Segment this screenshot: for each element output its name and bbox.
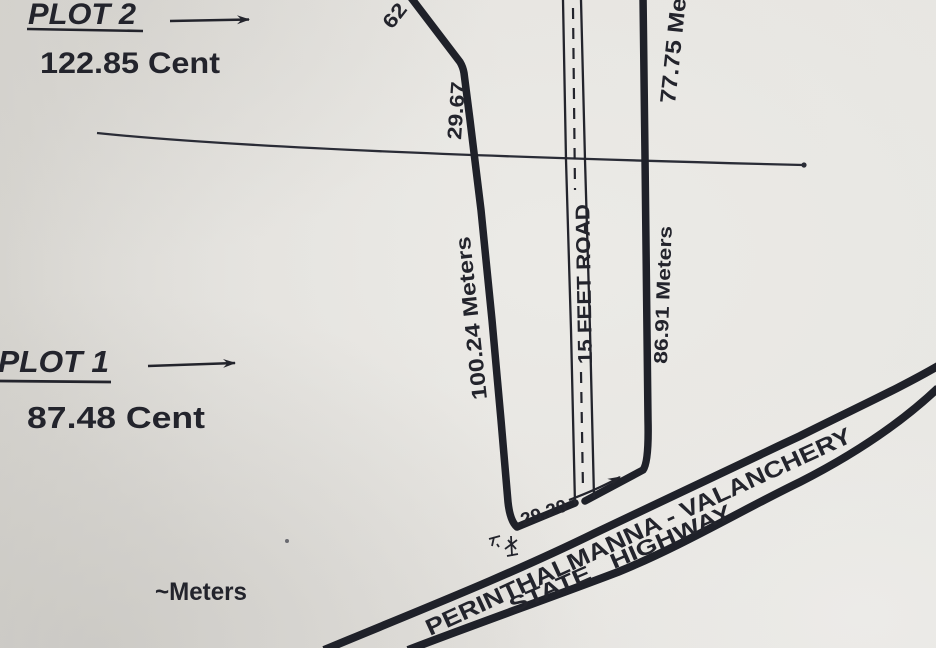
svg-text:~Meters: ~Meters <box>155 578 247 606</box>
svg-text:122.85 Cent: 122.85 Cent <box>40 47 220 80</box>
svg-text:PLOT 2: PLOT 2 <box>28 0 136 31</box>
svg-text:87.48 Cent: 87.48 Cent <box>27 400 205 435</box>
svg-text:15 FEET ROAD: 15 FEET ROAD <box>572 204 597 364</box>
svg-text:PLOT 1: PLOT 1 <box>0 344 109 379</box>
svg-text:29.67: 29.67 <box>444 81 470 140</box>
